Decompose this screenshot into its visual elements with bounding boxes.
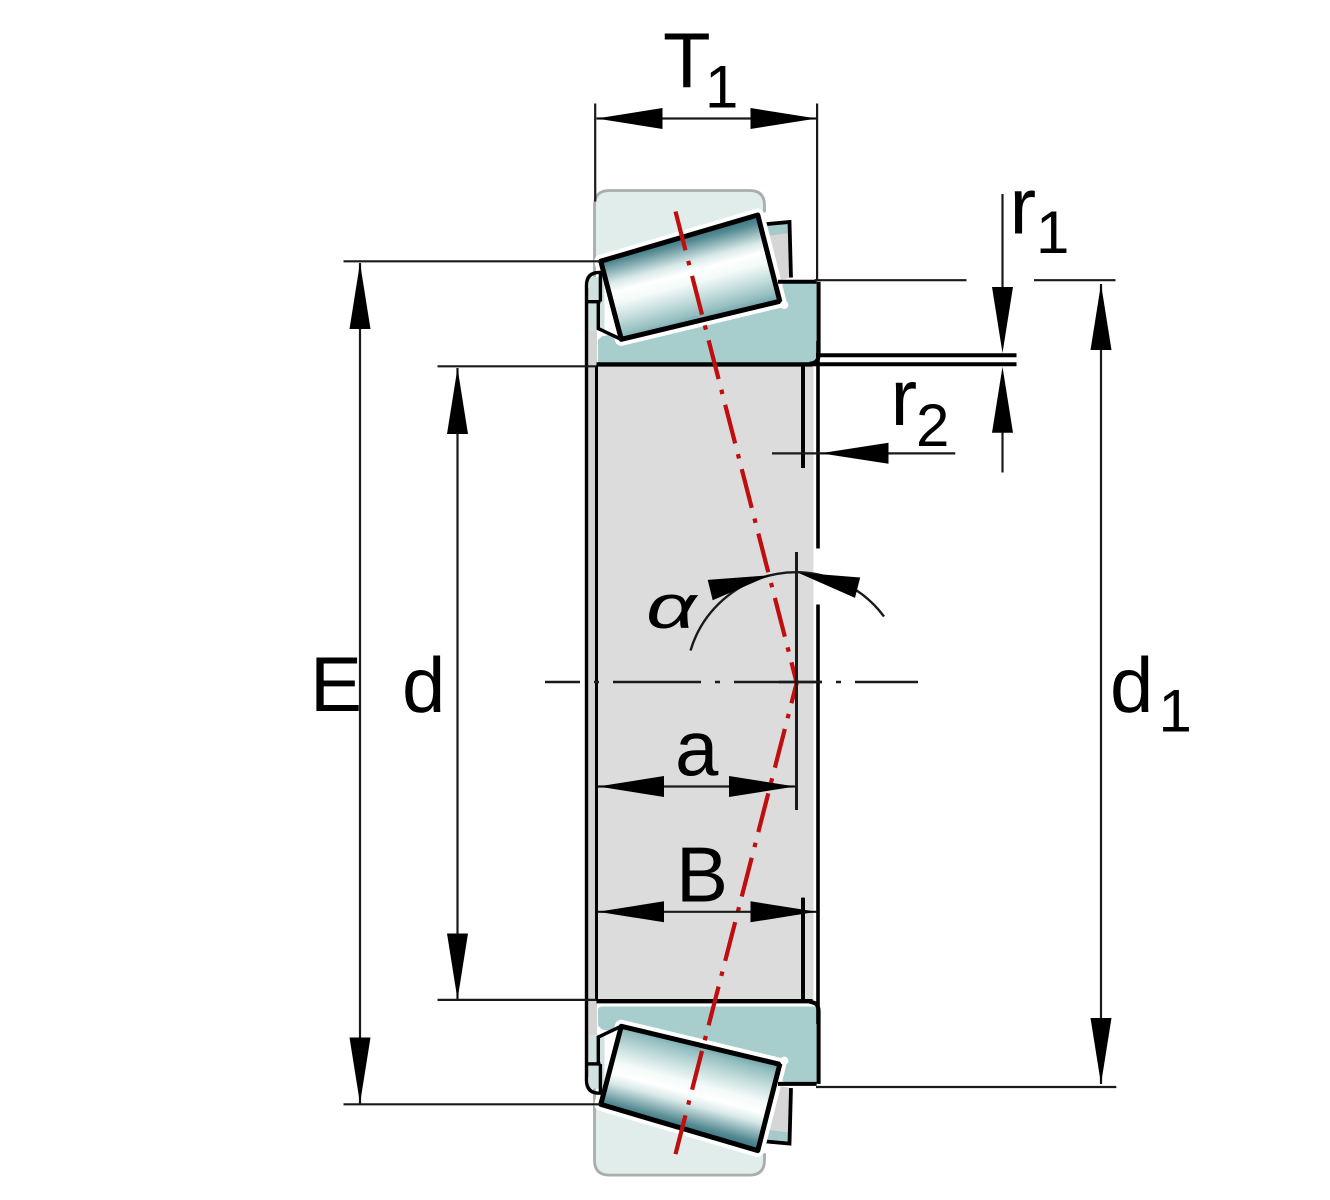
svg-text:1: 1 xyxy=(1036,199,1069,266)
svg-text:a: a xyxy=(675,704,719,792)
svg-text:d: d xyxy=(402,641,445,729)
svg-text:2: 2 xyxy=(916,392,949,459)
svg-text:1: 1 xyxy=(705,54,738,121)
svg-text:r: r xyxy=(1010,162,1037,251)
svg-text:d: d xyxy=(1110,641,1153,729)
svg-text:E: E xyxy=(310,640,362,728)
svg-text:r: r xyxy=(891,353,918,442)
svg-text:1: 1 xyxy=(1159,678,1192,745)
svg-text:T: T xyxy=(663,17,711,105)
svg-text:B: B xyxy=(676,831,728,919)
svg-text:α: α xyxy=(646,572,699,641)
